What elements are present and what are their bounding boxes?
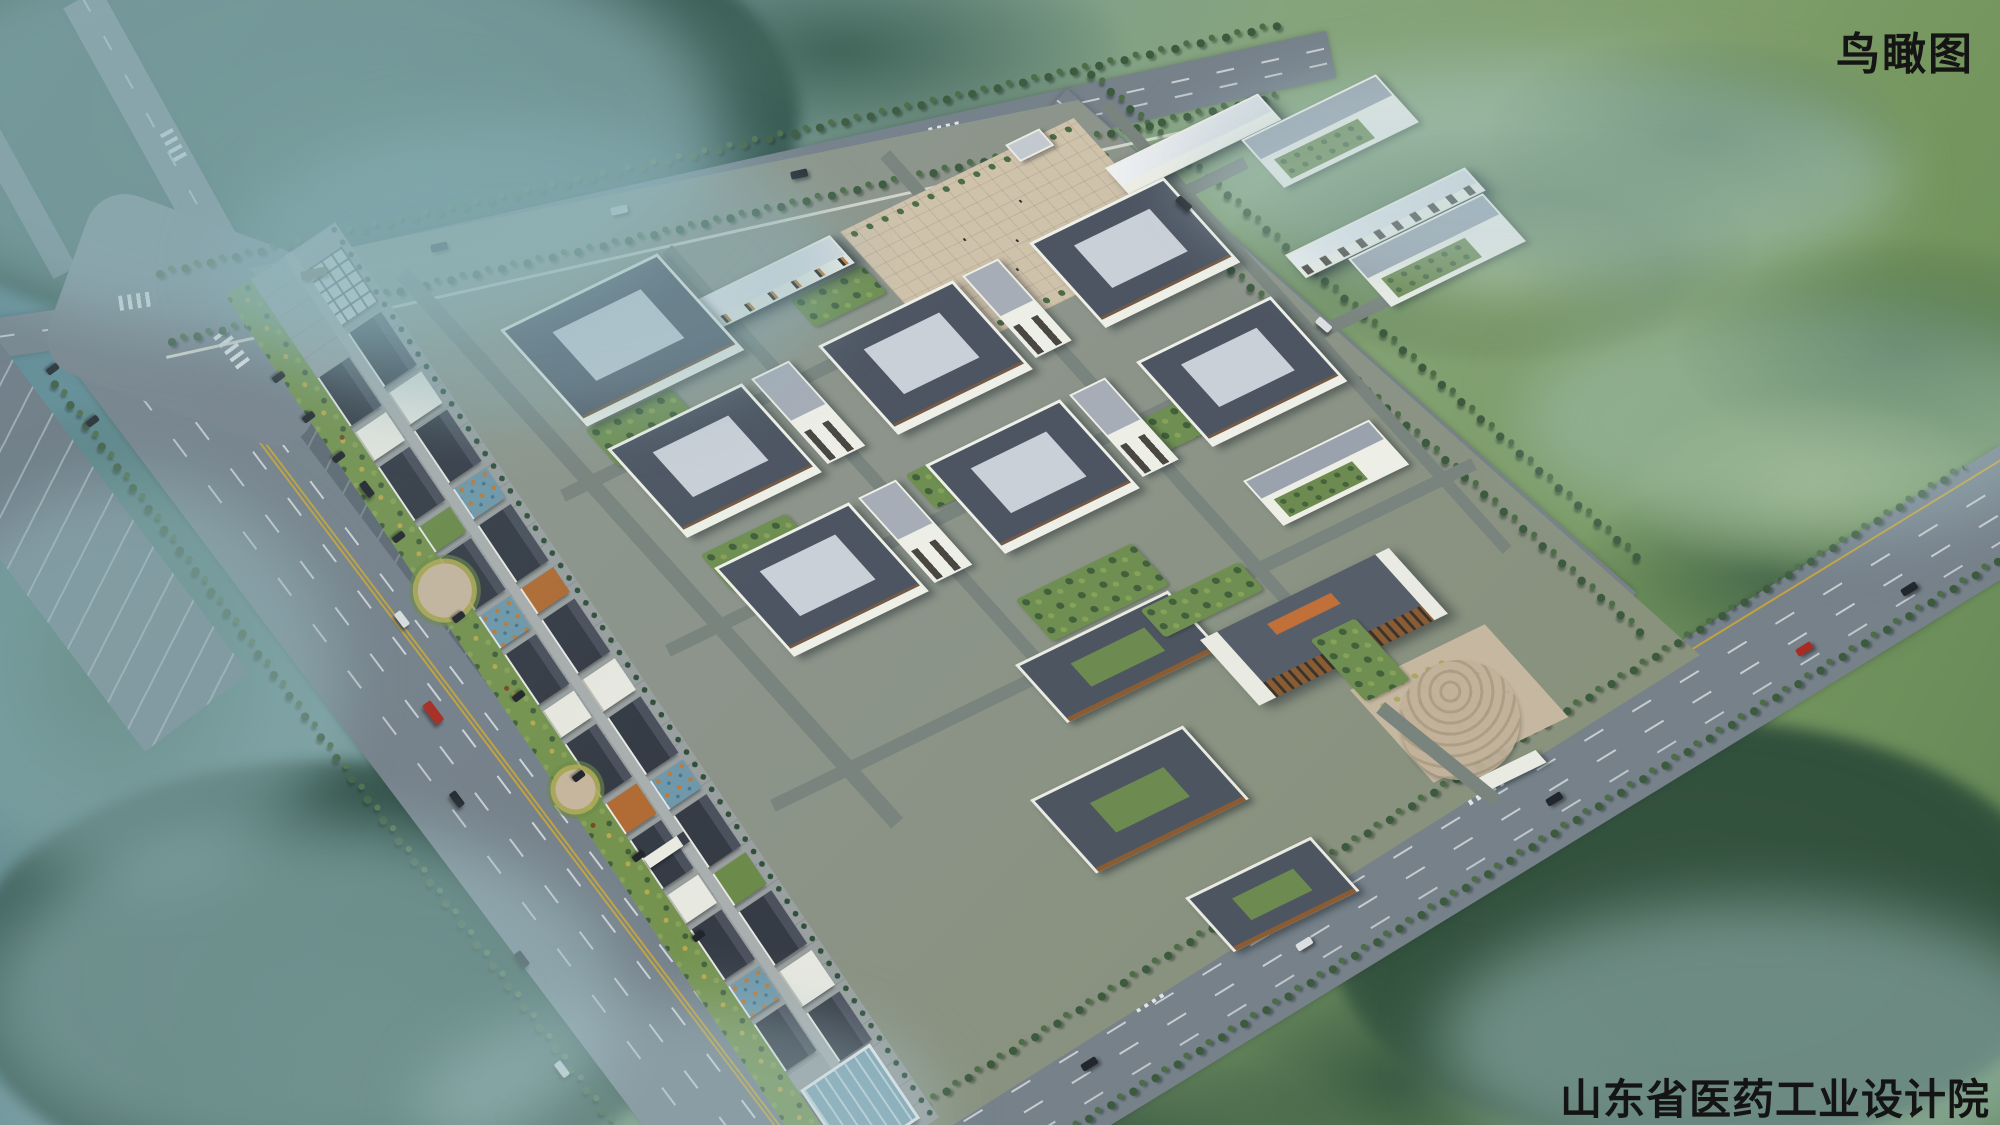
plaza-people bbox=[1015, 239, 1019, 242]
fog-top-left-2 bbox=[220, 120, 840, 420]
aerial-rendering-scene: 鸟瞰图 山东省医药工业设计院 bbox=[0, 0, 2000, 1125]
view-title-label: 鸟瞰图 bbox=[1836, 18, 1974, 82]
design-institute-credit: 山东省医药工业设计院 bbox=[1560, 1066, 1990, 1125]
plaza-people bbox=[963, 238, 967, 241]
plaza-people bbox=[1019, 200, 1023, 203]
plaza-people bbox=[1015, 268, 1019, 271]
fog-top-right bbox=[1180, 60, 1900, 290]
